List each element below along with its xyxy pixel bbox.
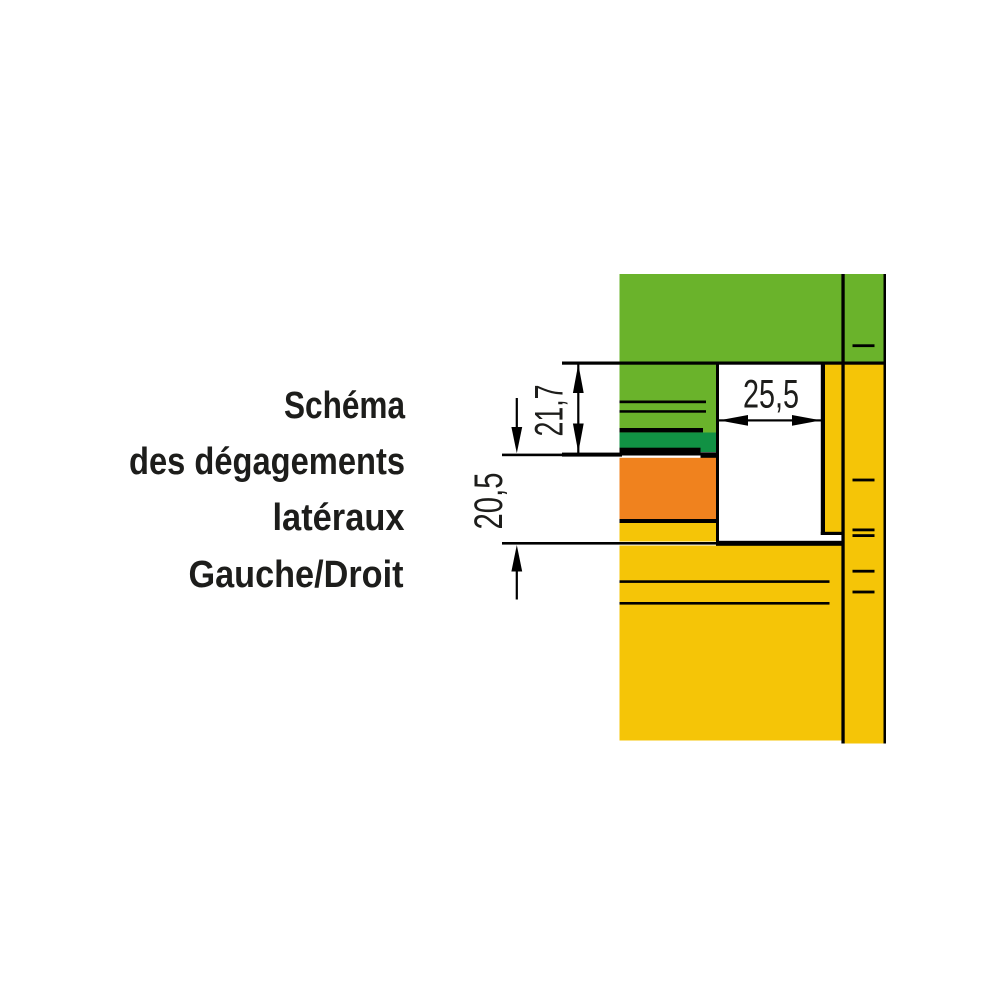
svg-text:20,5: 20,5 bbox=[467, 473, 511, 530]
svg-text:21,7: 21,7 bbox=[528, 385, 572, 437]
svg-text:Schéma: Schéma bbox=[284, 385, 406, 427]
svg-text:latéraux: latéraux bbox=[273, 497, 405, 539]
svg-text:25,5: 25,5 bbox=[743, 373, 799, 417]
svg-text:Gauche/Droit: Gauche/Droit bbox=[189, 554, 404, 596]
svg-text:des dégagements: des dégagements bbox=[129, 441, 405, 483]
